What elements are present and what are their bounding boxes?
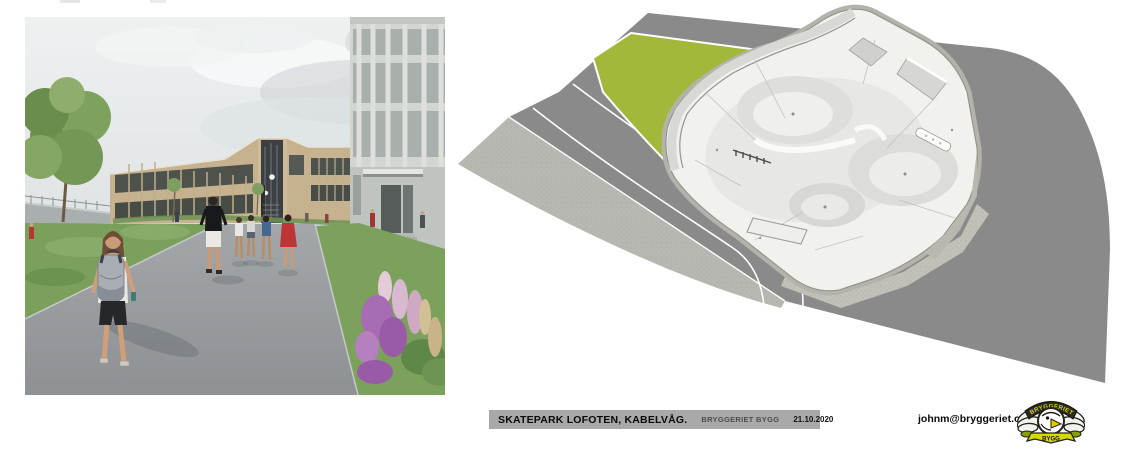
logo-text-bottom: BYGG [1042,437,1060,443]
entrance-slot [261,140,283,223]
logo-bird-head [1038,408,1064,434]
purple-flowers [379,317,407,357]
drawing-title: SKATEPARK LOFOTEN, KABELVÅG. [498,414,687,426]
scan-artifact [150,0,166,3]
drawing-sheet: SKATEPARK LOFOTEN, KABELVÅG. BRYGGERIET … [0,0,1127,451]
contact-email: johnm@bryggeriet.org [918,413,1031,425]
entrance-door [381,185,401,233]
white-building [350,17,445,249]
bryggeriet-logo: BRYGGERIET BYGG [1017,390,1085,448]
entrance-canopy [363,169,423,174]
dry-grass [428,317,442,357]
backpack [98,251,124,302]
drain [904,173,907,176]
title-block: SKATEPARK LOFOTEN, KABELVÅG. BRYGGERIET … [489,410,820,429]
leg [104,325,107,359]
window [289,155,304,175]
company-name: BRYGGERIET BYGG [701,415,779,424]
person-red-left-edge [29,223,34,239]
shoe [100,358,108,363]
drain [716,149,718,151]
phone [131,292,136,301]
window-row [353,63,445,103]
purple-flowers [355,331,379,363]
window-row [353,29,445,55]
sidelight [403,185,413,233]
shoe [120,361,129,366]
scan-artifact [60,0,80,3]
drawing-date: 21.10.2020 [793,415,833,424]
eye [1046,416,1049,419]
window [353,175,361,215]
window-row [353,111,445,157]
logo-bottom-ribbon: BYGG [1027,433,1075,443]
flower-plume [392,279,408,319]
cloud [195,21,315,53]
drain [951,129,953,131]
purple-flowers [357,360,393,384]
drain [824,206,827,209]
round-lamp [269,174,275,180]
school-courtyard-rendering [25,17,445,395]
skatepark-3d-rendering [455,0,1127,390]
drain [792,113,795,116]
